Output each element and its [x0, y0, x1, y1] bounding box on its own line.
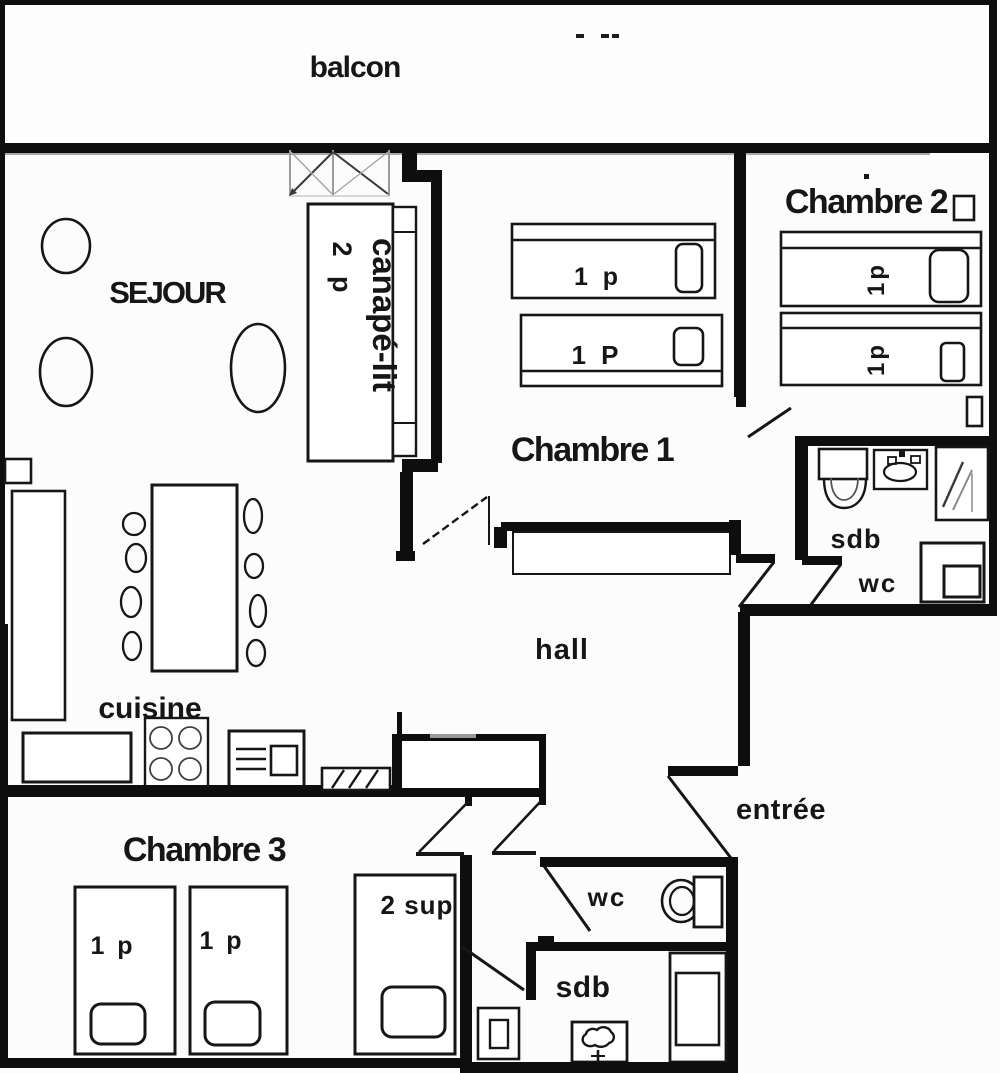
svg-text:SEJOUR: SEJOUR [109, 275, 226, 310]
svg-text:wc: wc [587, 882, 627, 912]
svg-text:2 p: 2 p [327, 241, 357, 298]
svg-text:1 p: 1 p [90, 932, 135, 960]
svg-text:entrée: entrée [736, 794, 826, 826]
svg-text:Chambre 2: Chambre 2 [785, 183, 948, 221]
svg-text:1 p: 1 p [199, 927, 244, 955]
svg-text:2 sup: 2 sup [381, 890, 454, 920]
svg-text:hall: hall [535, 634, 589, 666]
svg-text:1 p: 1 p [574, 263, 622, 291]
svg-text:balcon: balcon [310, 51, 401, 84]
svg-text:sdb: sdb [556, 971, 611, 1004]
svg-text:Chambre 3: Chambre 3 [123, 831, 286, 869]
svg-text:1p: 1p [863, 262, 890, 296]
svg-text:Chambre 1: Chambre 1 [511, 431, 674, 469]
svg-text:canapé-lit: canapé-lit [366, 238, 403, 392]
svg-text:1 P: 1 P [571, 340, 622, 370]
svg-text:wc: wc [858, 568, 898, 598]
svg-text:sdb: sdb [830, 524, 881, 554]
svg-text:1p: 1p [863, 342, 890, 376]
